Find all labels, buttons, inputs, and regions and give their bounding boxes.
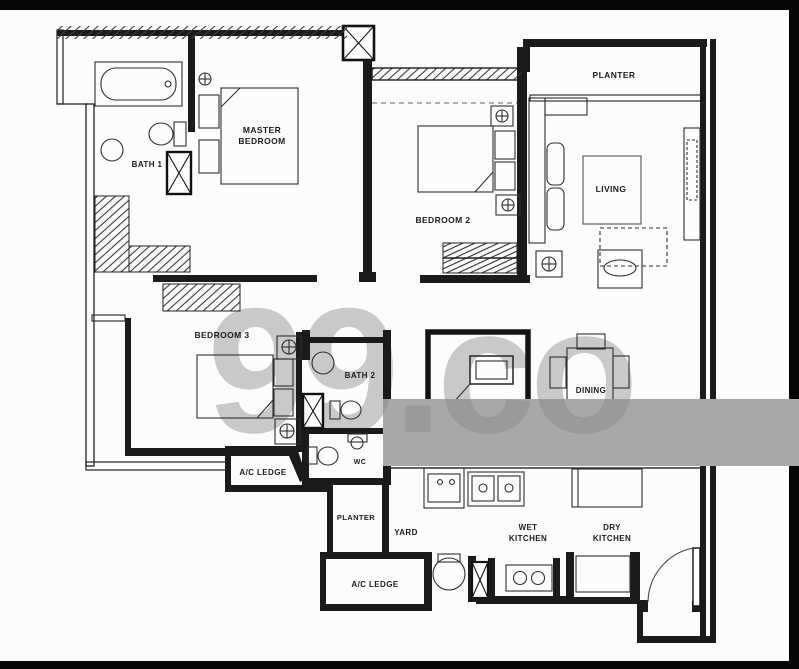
room-label-bedroom3: BEDROOM 3 <box>194 330 249 340</box>
wall-planterb-right <box>382 480 389 555</box>
room-label-wet-kitchen-1: WET <box>519 523 538 532</box>
floor-plan-image: 99.co <box>0 0 799 669</box>
room-label-bath1: BATH 1 <box>132 160 163 169</box>
room-label-bath2: BATH 2 <box>345 371 376 380</box>
wall-right-inner <box>700 39 706 637</box>
wall-bath1 <box>188 36 195 132</box>
frame-bottom <box>0 661 799 669</box>
room-label-living: LIVING <box>596 184 627 194</box>
shaft-bath1-icon <box>167 152 191 194</box>
wall-jamb <box>359 272 376 282</box>
room-label-dry-kitchen-2: KITCHEN <box>593 534 631 543</box>
wall-acledge-bottom <box>225 485 333 492</box>
shaft-bedroom3-icon <box>303 394 323 428</box>
room-label-planter-top: PLANTER <box>593 70 636 80</box>
room-label-ac-ledge-bottom: A/C LEDGE <box>351 580 398 589</box>
wall-right-outer <box>710 39 716 643</box>
wall-acledge2-bottom <box>320 604 426 611</box>
room-label-master-bedroom-2: BEDROOM <box>238 136 285 146</box>
shaft-kitchen-icon <box>472 562 488 598</box>
wall-entry-bottom <box>637 636 716 643</box>
room-label-master-bedroom-1: MASTER <box>243 125 281 135</box>
wall-bath2-top <box>308 337 390 343</box>
wall-master-bottom <box>153 275 317 282</box>
window-bedroom2-top <box>372 68 523 80</box>
wall-planter-top <box>523 39 707 47</box>
wall-yard-corner <box>424 552 432 611</box>
room-label-wet-kitchen-2: KITCHEN <box>509 534 547 543</box>
wall-dry-left <box>566 552 574 602</box>
floor-plan-page: 99.co <box>0 0 799 669</box>
wall-door-jamb-left <box>637 600 648 612</box>
room-label-planter-bottom: PLANTER <box>337 513 375 522</box>
room-label-wc: WC <box>354 459 366 466</box>
wall-dry-bottom <box>566 597 640 604</box>
closet-master-2 <box>129 246 190 272</box>
frame-right <box>789 0 799 669</box>
wall-bedroom2-bottom <box>420 275 530 283</box>
room-label-ac-ledge-left: A/C LEDGE <box>239 468 286 477</box>
room-label-bedroom2: BEDROOM 2 <box>415 215 470 225</box>
window-bedroom2-louvre <box>443 243 517 273</box>
wall-dry-right <box>630 552 640 604</box>
closet-master-1 <box>95 196 129 272</box>
wall-master-right <box>363 60 372 274</box>
column-icon <box>343 26 374 60</box>
wall-planterb-left <box>327 480 333 558</box>
wall-bedroom3-left <box>125 318 131 454</box>
wall-acledge-top <box>225 446 297 454</box>
wall-acledge2-left <box>320 552 326 610</box>
frame-top <box>0 0 799 10</box>
wall-bath2-stub <box>302 330 310 360</box>
window-hatch-top <box>57 26 347 39</box>
wall-living-left <box>517 47 527 283</box>
room-label-dining: DINING <box>576 386 606 395</box>
room-label-yard: YARD <box>394 528 418 537</box>
closet-bedroom3 <box>163 284 240 311</box>
ceiling-fixture-icon <box>199 73 211 85</box>
wall-kitchen-bottom <box>476 596 566 604</box>
wall-wc-bottom <box>302 478 390 485</box>
room-label-dry-kitchen-1: DRY <box>603 523 621 532</box>
wall-acledge2-top <box>320 552 432 559</box>
